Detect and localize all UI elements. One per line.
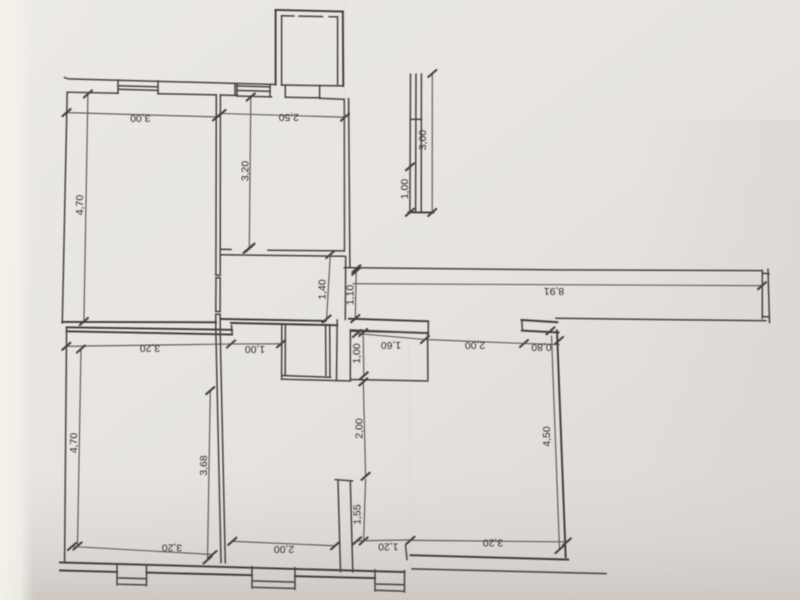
svg-text:4,50: 4,50	[542, 426, 553, 446]
svg-text:0,80: 0,80	[531, 341, 551, 352]
svg-text:1,00: 1,00	[352, 343, 363, 363]
svg-text:3,20: 3,20	[241, 161, 252, 181]
svg-text:1,55: 1,55	[352, 504, 363, 524]
svg-text:1,00: 1,00	[245, 343, 265, 354]
svg-text:3,00: 3,00	[418, 130, 429, 150]
svg-text:2,00: 2,00	[465, 339, 485, 350]
svg-text:8,91: 8,91	[544, 285, 564, 296]
svg-text:1,10: 1,10	[345, 285, 356, 305]
svg-text:4,70: 4,70	[69, 433, 80, 453]
svg-text:1,60: 1,60	[381, 339, 401, 350]
svg-text:3,20: 3,20	[162, 542, 182, 553]
svg-text:2,50: 2,50	[278, 111, 298, 122]
svg-text:3,20: 3,20	[483, 537, 503, 548]
svg-text:1,40: 1,40	[317, 279, 328, 299]
svg-text:3,00: 3,00	[130, 112, 150, 123]
svg-text:3,68: 3,68	[199, 455, 210, 475]
svg-text:1,00: 1,00	[400, 179, 411, 199]
svg-text:4,70: 4,70	[75, 195, 86, 215]
svg-text:3,20: 3,20	[140, 342, 160, 353]
svg-text:1,20: 1,20	[378, 541, 398, 552]
svg-text:2,00: 2,00	[355, 418, 366, 438]
svg-text:2,00: 2,00	[274, 543, 294, 554]
